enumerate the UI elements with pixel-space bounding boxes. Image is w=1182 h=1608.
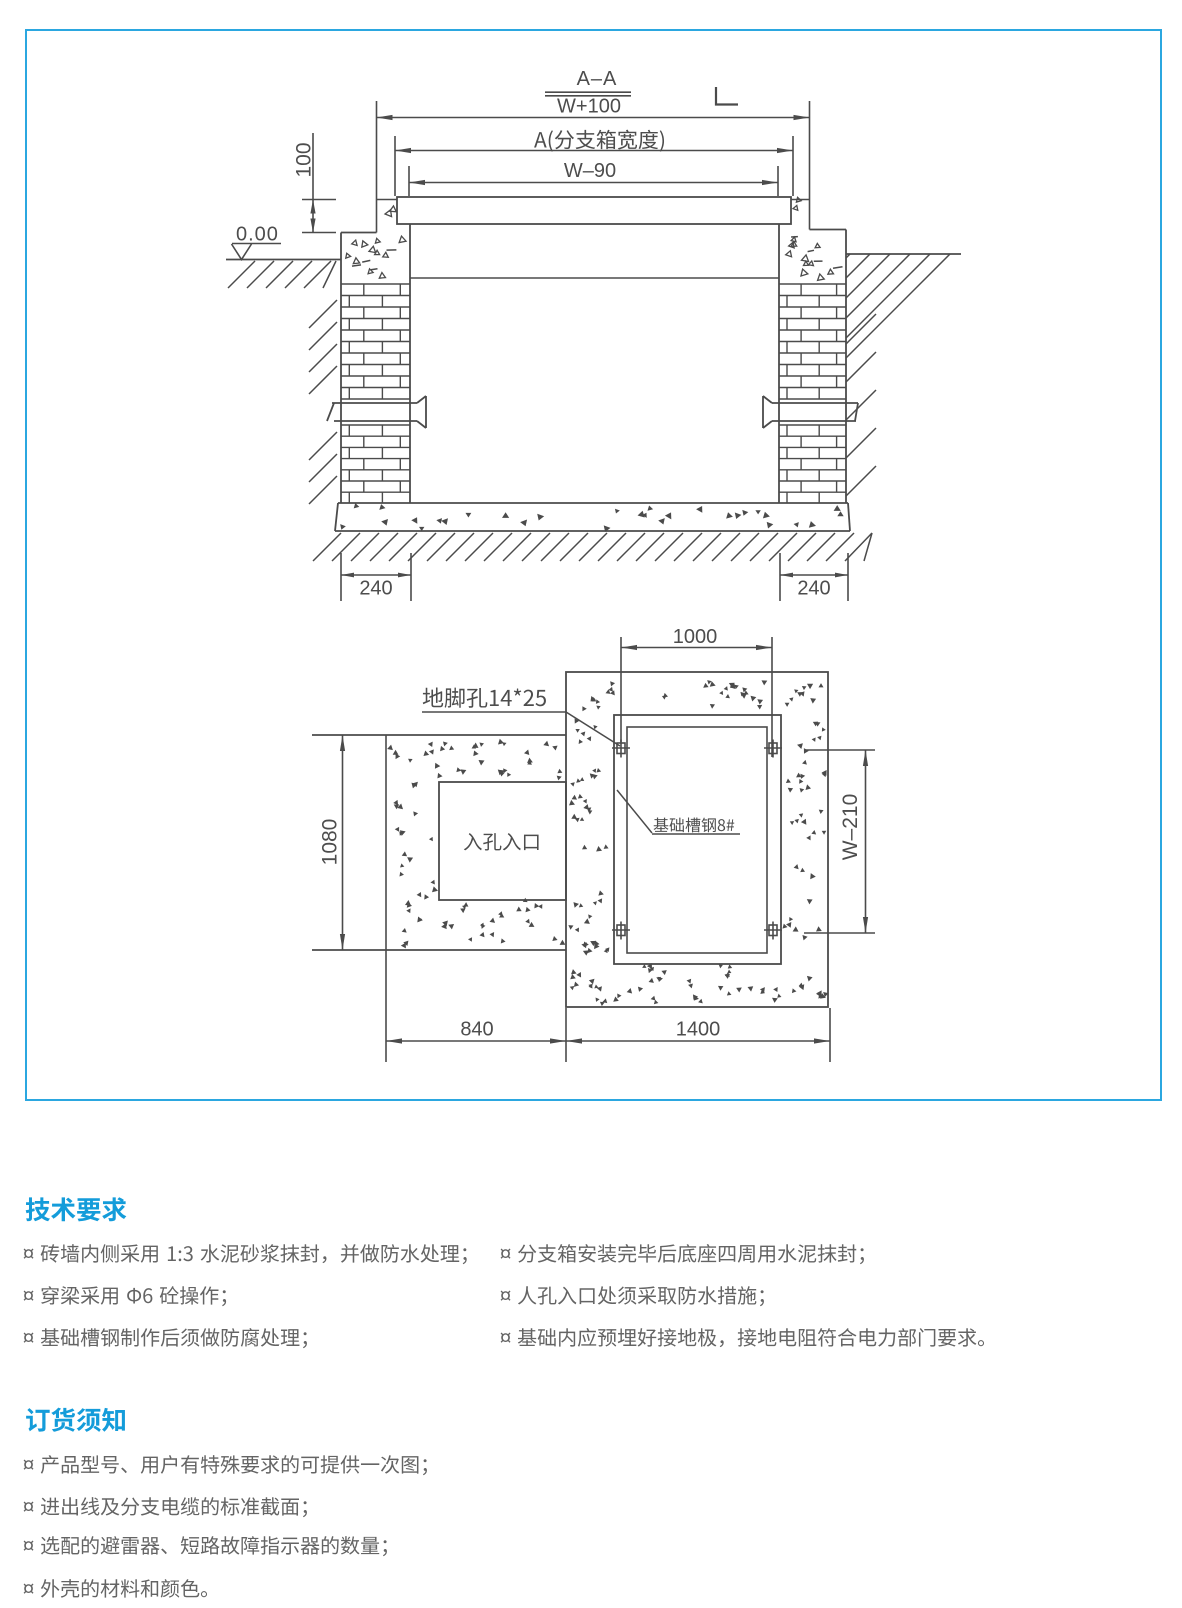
svg-text:A–A: A–A — [577, 68, 618, 90]
svg-text:840: 840 — [460, 1019, 493, 1041]
svg-text:W–90: W–90 — [564, 160, 616, 182]
svg-text:1080: 1080 — [319, 819, 342, 866]
svg-text:240: 240 — [359, 578, 392, 600]
svg-text:1400: 1400 — [676, 1019, 721, 1041]
svg-text:W+100: W+100 — [557, 96, 621, 118]
svg-text:0.00: 0.00 — [236, 224, 279, 246]
svg-text:240: 240 — [797, 578, 830, 600]
svg-text:W–210: W–210 — [839, 794, 862, 861]
svg-text:100: 100 — [293, 142, 316, 177]
svg-text:1000: 1000 — [673, 626, 718, 648]
